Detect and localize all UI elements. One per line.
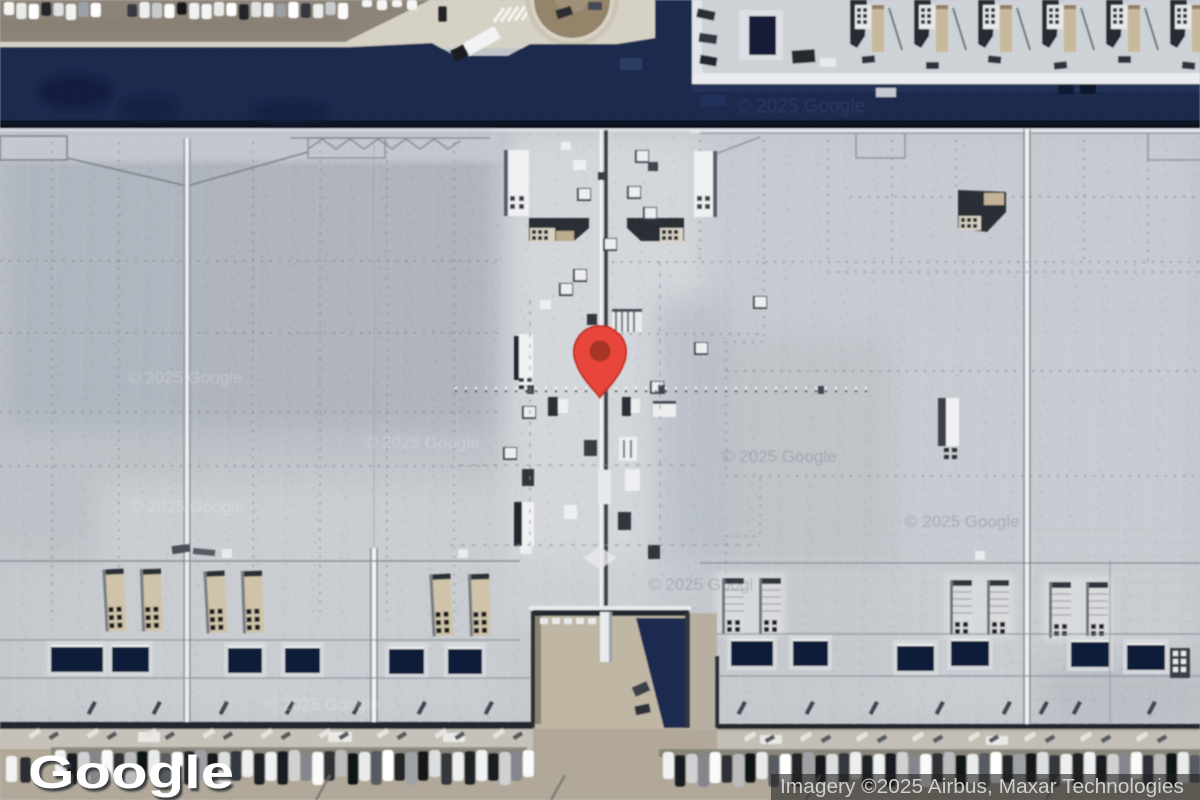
svg-text:© 2025 Googl: © 2025 Googl <box>648 575 753 594</box>
svg-text:© 2025 Google: © 2025 Google <box>130 497 245 516</box>
svg-text:Imagery ©2025 Airbus, Maxar Te: Imagery ©2025 Airbus, Maxar Technologies <box>780 775 1184 798</box>
svg-text:© 2025 Google: © 2025 Google <box>265 695 380 714</box>
svg-text:© 2025 Google: © 2025 Google <box>365 433 480 452</box>
svg-text:© 2025 Google: © 2025 Google <box>737 96 865 117</box>
svg-text:© 2025 Google: © 2025 Google <box>722 447 837 466</box>
svg-text:Google: Google <box>28 746 234 798</box>
svg-text:© 2025 Google: © 2025 Google <box>128 368 243 387</box>
svg-text:© 2025 Google: © 2025 Google <box>905 512 1020 531</box>
